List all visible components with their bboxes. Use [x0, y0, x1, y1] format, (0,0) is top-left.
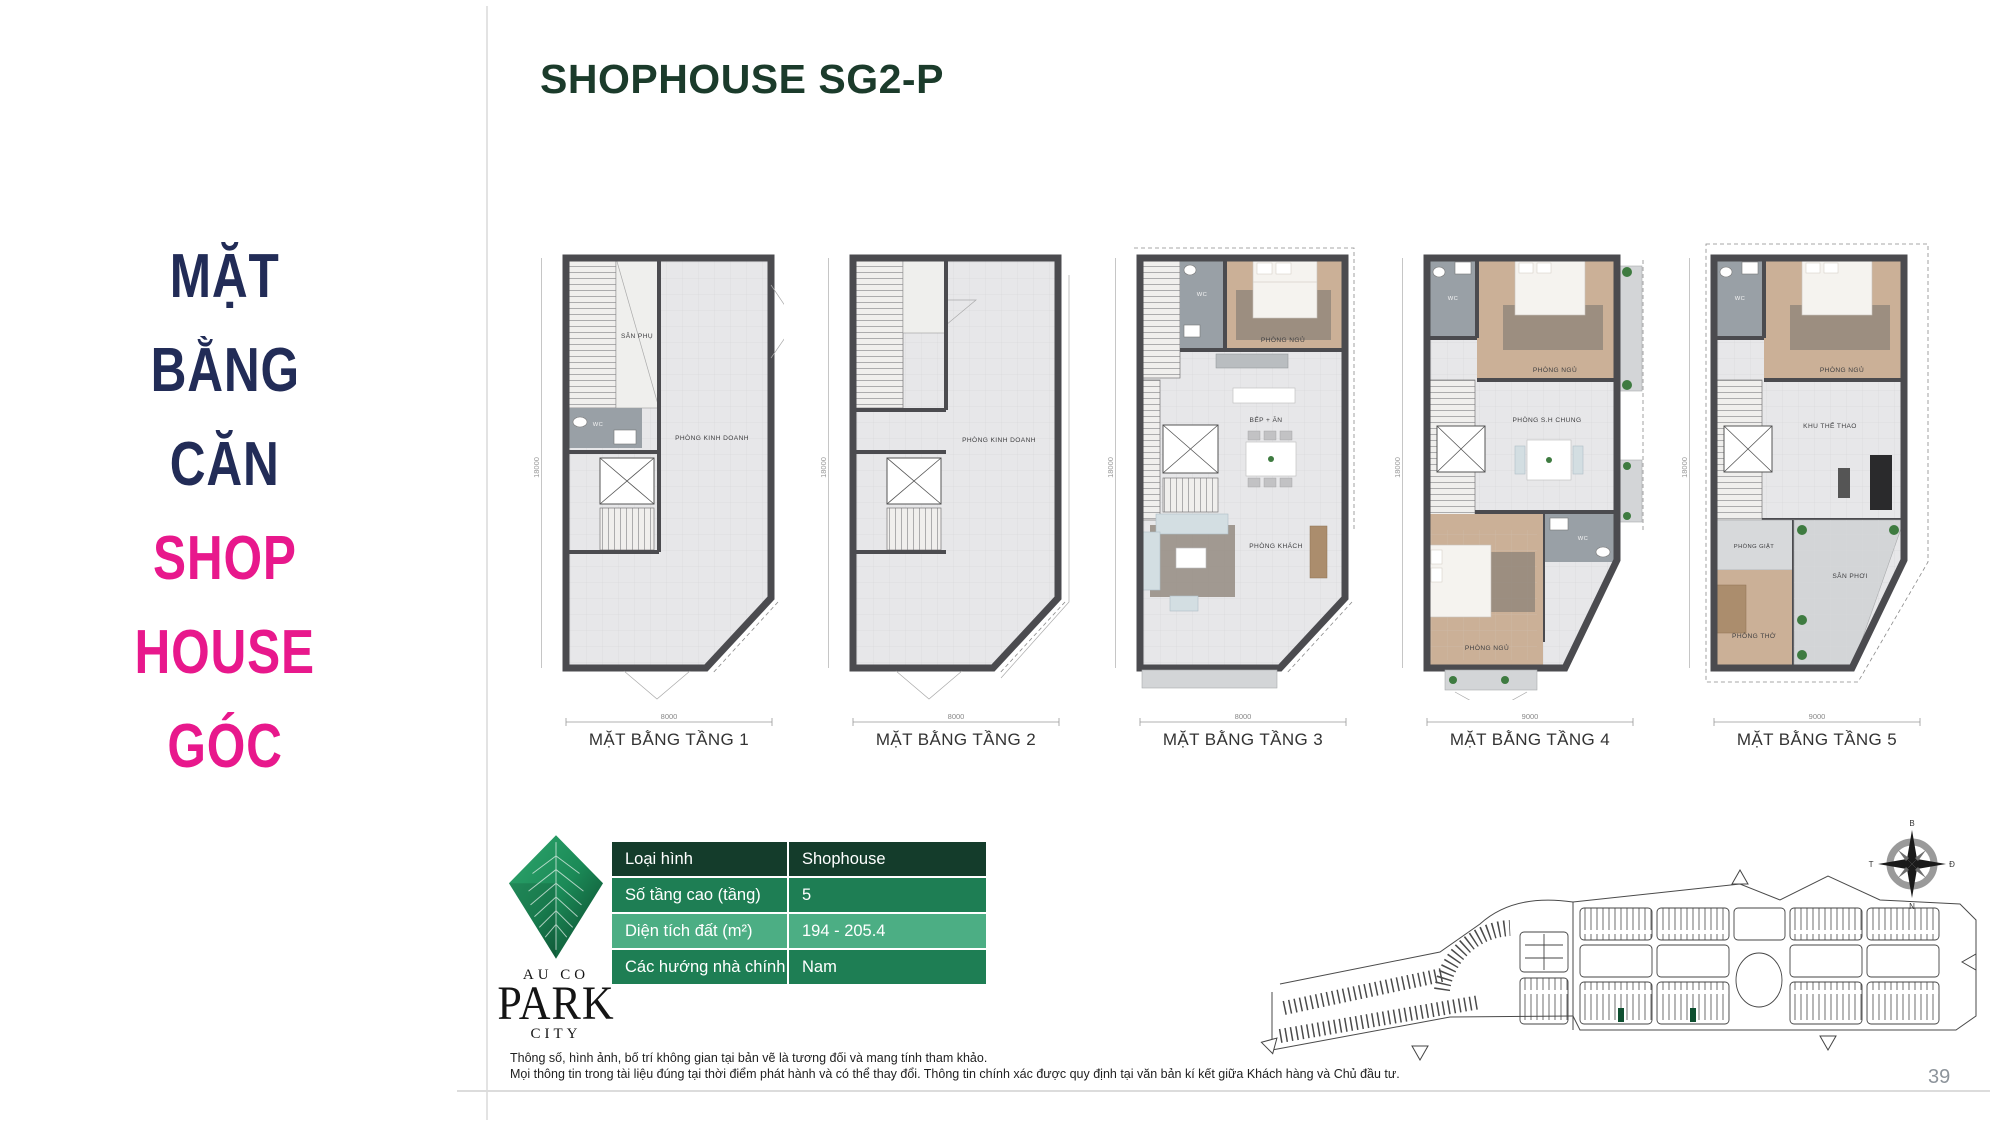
disclaimer: Thông số, hình ảnh, bố trí không gian tạ…	[510, 1050, 1400, 1082]
svg-text:PHÒNG NGỦ: PHÒNG NGỦ	[1261, 335, 1305, 344]
side-title-line: CĂN	[55, 426, 395, 520]
svg-text:8000: 8000	[661, 712, 678, 721]
disclaimer-line-2: Mọi thông tin trong tài liệu đúng tại th…	[510, 1066, 1400, 1082]
width-dimension: 9000	[1712, 712, 1922, 726]
brand-logo: AU CO PARK CITY	[497, 834, 615, 1043]
svg-text:SÂN PHỤ: SÂN PHỤ	[621, 331, 653, 340]
svg-text:T: T	[1869, 860, 1874, 869]
disclaimer-line-1: Thông số, hình ảnh, bố trí không gian tạ…	[510, 1050, 1400, 1066]
svg-text:PHÒNG NGỦ: PHÒNG NGỦ	[1533, 365, 1577, 374]
depth-dimension: 18000	[1115, 258, 1116, 668]
side-title: MẶT BẰNG CĂN SHOP HOUSE GÓC	[55, 238, 395, 802]
site-map: B N Đ T	[1180, 812, 1990, 1077]
side-title-line: HOUSE	[55, 614, 395, 708]
table-row: Số tầng cao (tầng) 5	[612, 878, 986, 912]
side-title-line: MẶT	[55, 238, 395, 332]
svg-text:PHÒNG KHÁCH: PHÒNG KHÁCH	[1249, 541, 1303, 550]
floor-plan-3-drawing: WC PHÒNG NGỦ BẾP + ĂN PHÒNG KHÁCH	[1128, 230, 1358, 700]
side-title-line: SHOP	[55, 520, 395, 614]
table-row-value: 194 - 205.4	[787, 914, 986, 948]
compass-icon: B N Đ T	[1869, 819, 1956, 911]
floor-plan-4-drawing: WC PHÒNG NGỦ PHÒNG S.H CHUNG WC PHÒNG NG…	[1415, 230, 1645, 700]
table-row-label: Các hướng nhà chính	[612, 958, 787, 977]
svg-text:PHÒNG GIẶT: PHÒNG GIẶT	[1734, 543, 1774, 550]
floor-plan-5-label: MẶT BẰNG TẦNG 5	[1737, 730, 1897, 750]
svg-text:9000: 9000	[1809, 712, 1826, 721]
svg-text:KHU THỂ THAO: KHU THỂ THAO	[1803, 421, 1857, 430]
floor-plan-1: 18000 SÂN PHỤ WC PHÒNG KINH DOANH	[554, 230, 784, 750]
svg-text:PHÒNG NGỦ: PHÒNG NGỦ	[1820, 365, 1864, 374]
page-number: 39	[1928, 1066, 1950, 1089]
svg-text:B: B	[1909, 819, 1914, 828]
svg-text:WC: WC	[1448, 296, 1458, 302]
highlighted-lot	[1618, 1008, 1624, 1022]
floor-plan-1-label: MẶT BẰNG TẦNG 1	[589, 730, 749, 750]
svg-text:8000: 8000	[1235, 712, 1252, 721]
svg-text:WC: WC	[593, 422, 603, 428]
table-row-label: Loại hình	[612, 850, 787, 869]
svg-text:WC: WC	[1197, 292, 1207, 298]
table-row: Loại hình Shophouse	[612, 842, 986, 876]
table-row-value: 5	[787, 878, 986, 912]
vertical-divider	[486, 6, 488, 1120]
width-dimension: 8000	[851, 712, 1061, 726]
unit-info-table: Loại hình Shophouse Số tầng cao (tầng) 5…	[612, 842, 986, 986]
width-dimension: 8000	[564, 712, 774, 726]
floor-plan-2-drawing: PHÒNG KINH DOANH	[841, 230, 1071, 700]
width-dimension: 9000	[1425, 712, 1635, 726]
svg-text:PHÒNG THỜ: PHÒNG THỜ	[1732, 631, 1776, 640]
footer-rule	[457, 1090, 1990, 1092]
svg-text:PHÒNG NGỦ: PHÒNG NGỦ	[1465, 643, 1509, 652]
svg-text:PHÒNG KINH DOANH: PHÒNG KINH DOANH	[675, 433, 749, 442]
svg-text:Đ: Đ	[1949, 860, 1955, 869]
depth-dimension: 18000	[828, 258, 829, 668]
depth-dimension: 18000	[1402, 258, 1403, 668]
page-title: SHOPHOUSE SG2-P	[540, 56, 944, 103]
svg-text:WC: WC	[1578, 536, 1588, 542]
table-row: Các hướng nhà chính Nam	[612, 950, 986, 984]
svg-text:WC: WC	[1735, 296, 1745, 302]
floor-plan-2: 18000 PHÒNG KINH DOANH 8000	[841, 230, 1071, 750]
slide: MẶT BẰNG CĂN SHOP HOUSE GÓC SHOPHOUSE SG…	[0, 0, 2000, 1125]
floor-plan-1-drawing: SÂN PHỤ WC PHÒNG KINH DOANH	[554, 230, 784, 700]
svg-text:PHÒNG S.H CHUNG: PHÒNG S.H CHUNG	[1512, 415, 1581, 424]
floor-plan-3: 18000	[1128, 230, 1358, 750]
logo-diamond-icon	[507, 834, 605, 960]
width-dimension: 8000	[1138, 712, 1348, 726]
highlighted-lot	[1690, 1008, 1696, 1022]
floor-plan-2-label: MẶT BẰNG TẦNG 2	[876, 730, 1036, 750]
table-row-value: Shophouse	[787, 842, 986, 876]
depth-dimension: 18000	[1689, 258, 1690, 668]
svg-text:9000: 9000	[1522, 712, 1539, 721]
floor-plan-3-label: MẶT BẰNG TẦNG 3	[1163, 730, 1323, 750]
svg-text:8000: 8000	[948, 712, 965, 721]
depth-dimension: 18000	[541, 258, 542, 668]
floor-plan-5: 18000	[1702, 230, 1932, 750]
table-row-label: Số tầng cao (tầng)	[612, 886, 787, 905]
side-title-line: BẰNG	[55, 332, 395, 426]
logo-line-2: PARK	[497, 982, 615, 1025]
side-title-line: GÓC	[55, 708, 395, 802]
svg-text:PHÒNG KINH DOANH: PHÒNG KINH DOANH	[962, 435, 1036, 444]
table-row-value: Nam	[787, 950, 986, 984]
floor-plan-4: 18000	[1415, 230, 1645, 750]
svg-text:N: N	[1909, 902, 1915, 911]
table-row: Diện tích đất (m²) 194 - 205.4	[612, 914, 986, 948]
floor-plan-5-drawing: WC PHÒNG NGỦ KHU THỂ THAO PHÒNG GIẶT SÂN…	[1702, 230, 1932, 700]
floor-plan-4-label: MẶT BẰNG TẦNG 4	[1450, 730, 1610, 750]
table-row-label: Diện tích đất (m²)	[612, 922, 787, 941]
svg-text:SÂN PHƠI: SÂN PHƠI	[1832, 571, 1867, 580]
